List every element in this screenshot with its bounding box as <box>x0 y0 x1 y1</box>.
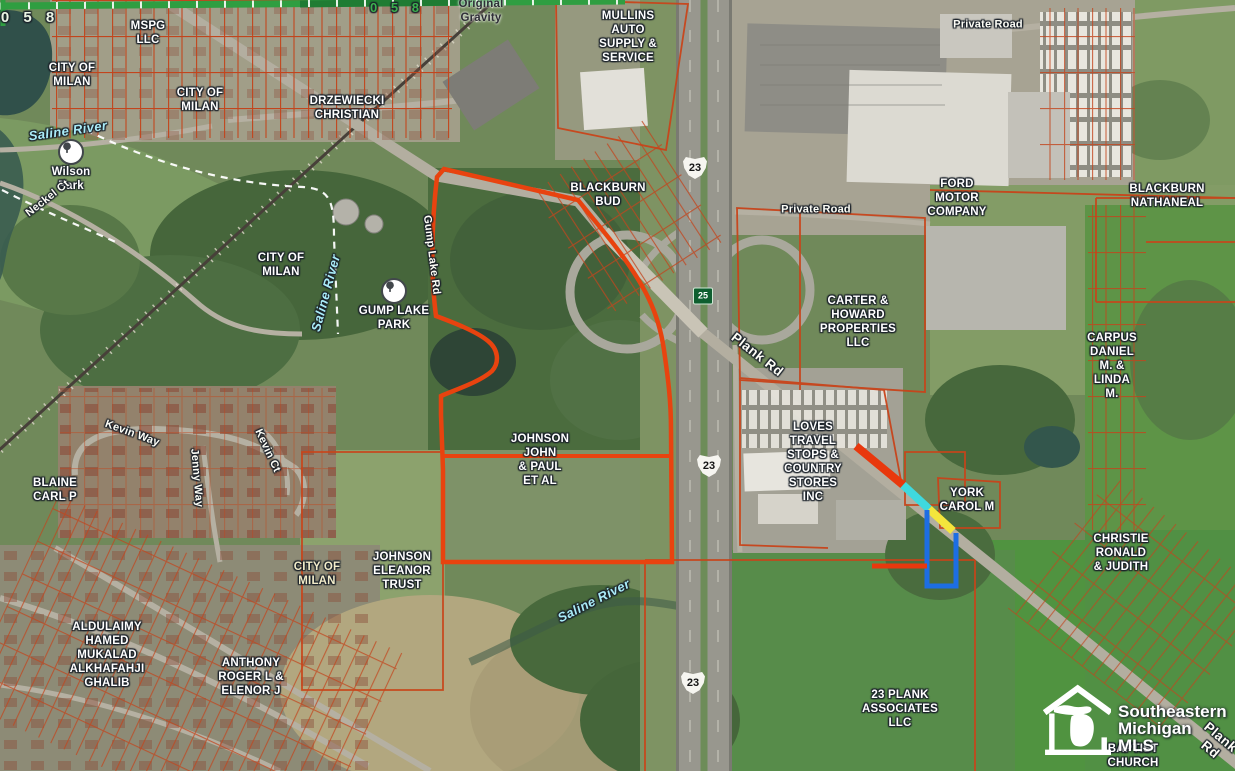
highway-us23 <box>676 0 732 771</box>
gump-lake-park-tree-icon <box>381 278 407 304</box>
wilson-park-tree-icon <box>58 139 84 165</box>
aerial-imagery <box>0 0 1235 771</box>
m25-route-marker-icon: 25 <box>693 288 713 305</box>
mls-logo-house-icon <box>1043 680 1111 760</box>
map-canvas[interactable]: 0 5 8 0 5 8 MSPG LLC CITY OF MILAN CITY … <box>0 0 1235 771</box>
